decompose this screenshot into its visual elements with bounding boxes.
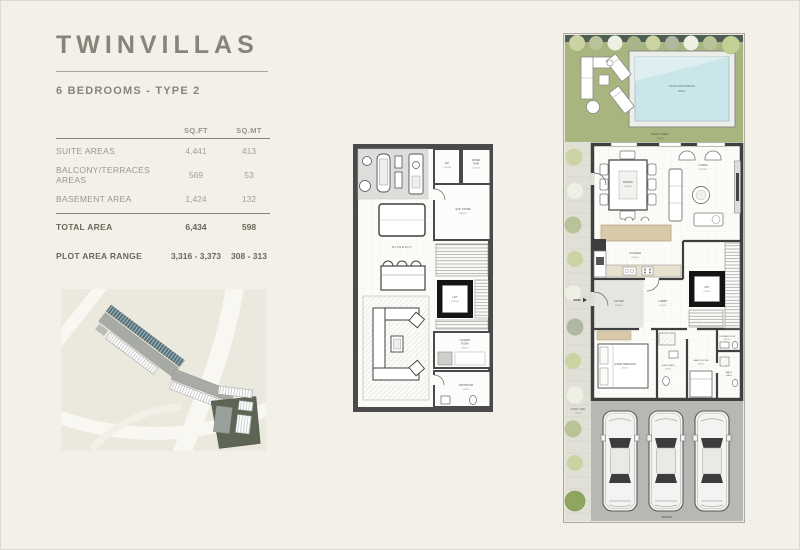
lift-dim: 2.0X1.8 bbox=[451, 301, 459, 303]
bed-icon bbox=[690, 371, 712, 397]
toilet-icon bbox=[732, 341, 738, 348]
svg-text:TANK: TANK bbox=[473, 163, 480, 166]
ground-lift: LIFT 2.0X1.8 bbox=[689, 271, 725, 307]
pillow-icon bbox=[600, 368, 608, 385]
powder-dim: 2.5X1.5 bbox=[724, 339, 731, 341]
pool: POOL PROVISION ONLY bbox=[629, 51, 735, 127]
area-table-header: SQ.FT SQ.MT bbox=[56, 123, 270, 139]
table-row: BASEMENT AREA 1,424 132 bbox=[56, 187, 270, 211]
laundry-room: LAUNDRY ROOM 1.8X1.7 bbox=[434, 332, 491, 368]
home-theatre-area bbox=[363, 296, 429, 400]
col-header-sqmt: SQ.MT bbox=[228, 126, 270, 135]
title-divider bbox=[56, 71, 268, 72]
maids-room-label: MAID'S ROOM bbox=[694, 359, 709, 362]
lift-dim: 2.0X1.8 bbox=[703, 291, 711, 293]
page-subtitle: 6 BEDROOMS - TYPE 2 bbox=[56, 85, 271, 97]
weight-rack-icon bbox=[395, 156, 402, 168]
pillow-icon bbox=[600, 347, 608, 364]
row-sqft: 4,441 bbox=[164, 146, 228, 156]
row-sqft: 569 bbox=[164, 170, 228, 180]
chair-icon bbox=[600, 194, 608, 205]
back-yard-dim: 7.4X5.7 bbox=[656, 139, 665, 141]
main-door-gap bbox=[591, 292, 595, 306]
laundry-counter bbox=[455, 352, 485, 365]
chair-icon bbox=[648, 164, 656, 175]
bar-counter-icon bbox=[381, 261, 425, 290]
bathroom-dim: 1.5X3.1 bbox=[462, 389, 470, 391]
side-table-icon bbox=[599, 75, 609, 85]
chair-icon bbox=[648, 179, 656, 190]
svg-text:ONLY: ONLY bbox=[678, 89, 686, 93]
parking-label: PARKING bbox=[662, 516, 673, 519]
chair-icon bbox=[600, 164, 608, 175]
toilet-icon bbox=[663, 377, 670, 386]
brochure-page: TWINVILLAS 6 BEDROOMS - TYPE 2 SQ.FT SQ.… bbox=[0, 0, 800, 550]
water-tank-dim: 1.4X1.8 bbox=[472, 168, 480, 170]
row-sqft: 3,316 - 3,373 bbox=[164, 251, 228, 261]
col-header-sqft: SQ.FT bbox=[164, 126, 228, 135]
dining-label: DINING bbox=[623, 180, 633, 184]
pool-label: POOL PROVISION bbox=[669, 84, 695, 88]
fridge-icon bbox=[594, 239, 606, 251]
area-table: SQ.FT SQ.MT SUITE AREAS 4,441 413 BALCON… bbox=[56, 123, 270, 272]
basement-plan-graphic: HK 1.4X1.8 WATER TANK 1.4X1.8 SUP. STORE… bbox=[353, 144, 493, 412]
basement-lift: LIFT 2.0X1.8 bbox=[437, 280, 473, 318]
sink-icon bbox=[441, 396, 450, 404]
table-row-total: TOTAL AREA 6,434 598 bbox=[56, 214, 270, 240]
row-label: TOTAL AREA bbox=[56, 222, 164, 232]
living-dim: 5.5X5.8 bbox=[699, 169, 707, 171]
lift-label: LIFT bbox=[704, 285, 710, 289]
kitchen-label: KITCHEN bbox=[629, 251, 641, 255]
row-sqmt: 132 bbox=[228, 194, 270, 204]
row-sqmt: 53 bbox=[228, 170, 270, 180]
gym-ball-icon bbox=[360, 181, 371, 192]
toilet-icon bbox=[470, 396, 477, 405]
row-sqft: 6,434 bbox=[164, 222, 228, 232]
hk-label: HK bbox=[445, 161, 449, 165]
row-sqmt: 308 - 313 bbox=[228, 251, 270, 261]
svg-text:ROOM: ROOM bbox=[461, 344, 468, 346]
gym-area bbox=[358, 149, 428, 199]
bathroom-label: BATHROOM bbox=[459, 384, 473, 387]
guest-bedroom-label: GUEST BEDROOM bbox=[614, 363, 635, 366]
car-icon bbox=[647, 411, 685, 511]
guest-bath-label: GUEST BATH bbox=[661, 364, 675, 367]
location-map-graphic bbox=[61, 289, 266, 451]
foyer-dim: 2.5X2.4 bbox=[615, 305, 623, 307]
car-icon bbox=[601, 411, 639, 511]
washer-icon bbox=[438, 352, 452, 365]
dining-area: DINING 3.6X4.2 bbox=[600, 151, 656, 219]
weight-rack-icon bbox=[395, 172, 402, 188]
lobby-dim: 2.5X2.5 bbox=[659, 305, 667, 307]
shower-icon bbox=[720, 357, 729, 366]
wardrobe-icon bbox=[597, 331, 631, 340]
row-label: SUITE AREAS bbox=[56, 146, 164, 156]
maids-room-dim: 3.0X2.4 bbox=[698, 364, 705, 366]
laundry-label: LAUNDRY bbox=[460, 339, 471, 342]
gym-ball-icon bbox=[363, 157, 372, 166]
table-row: BALCONY/TERRACES AREAS 569 53 bbox=[56, 163, 270, 187]
sofa-icon bbox=[669, 169, 682, 221]
basement-label: BASEMENT bbox=[392, 245, 413, 249]
sup-store-dim: 3.4X3.7 bbox=[459, 213, 467, 215]
hk-dim: 1.4X1.8 bbox=[443, 167, 451, 169]
sup-store-room: SUP. STORE 3.4X3.7 bbox=[433, 184, 491, 240]
svg-text:BATH: BATH bbox=[727, 374, 733, 377]
basement-floor-plan: HK 1.4X1.8 WATER TANK 1.4X1.8 SUP. STORE… bbox=[353, 144, 493, 417]
powder-label: POWDER ROOM bbox=[719, 336, 735, 338]
main-entry-label: MAIN bbox=[573, 298, 580, 302]
chair-icon bbox=[600, 179, 608, 190]
kitchen-island bbox=[601, 225, 671, 241]
hob-icon bbox=[642, 267, 653, 275]
water-tank-room: WATER TANK 1.4X1.8 bbox=[462, 149, 491, 184]
laundry-dim: 1.8X1.7 bbox=[461, 348, 469, 350]
info-panel: TWINVILLAS 6 BEDROOMS - TYPE 2 SQ.FT SQ.… bbox=[56, 31, 271, 272]
round-chair-icon bbox=[587, 101, 600, 114]
sink-icon bbox=[720, 342, 729, 348]
table-row-plot-range: PLOT AREA RANGE 3,316 - 3,373 308 - 313 bbox=[56, 240, 270, 272]
lift-label: LIFT bbox=[452, 295, 458, 299]
sink-icon bbox=[669, 351, 678, 358]
shower-icon bbox=[659, 333, 675, 345]
guest-bath-dim: 1.6X3.1 bbox=[665, 369, 672, 371]
dining-dim: 3.6X4.2 bbox=[624, 186, 632, 188]
chair-icon bbox=[648, 194, 656, 205]
hk-room: HK 1.4X1.8 bbox=[434, 149, 460, 184]
lobby-label: LOBBY bbox=[658, 299, 667, 303]
foyer-floor bbox=[595, 281, 644, 328]
window-icons bbox=[611, 143, 725, 146]
row-sqft: 1,424 bbox=[164, 194, 228, 204]
location-map bbox=[61, 289, 266, 456]
maids-bath-label: MAID'S bbox=[726, 371, 733, 374]
table-row: SUITE AREAS 4,441 413 bbox=[56, 139, 270, 163]
ground-floor-plan: POOL PROVISION ONLY bbox=[563, 33, 745, 528]
foyer-label: FOYER bbox=[614, 299, 624, 303]
kitchen-dim: 3.4X4.1 bbox=[631, 257, 639, 259]
row-sqmt: 598 bbox=[228, 222, 270, 232]
sup-store-label: SUP. STORE bbox=[455, 207, 471, 211]
front-yard-dim: 7.4X6.0 bbox=[575, 413, 583, 415]
row-label: BALCONY/TERRACES AREAS bbox=[56, 165, 164, 185]
car-icon bbox=[693, 411, 731, 511]
toilet-icon bbox=[732, 379, 738, 386]
living-label: LIVING bbox=[698, 163, 707, 167]
row-label: PLOT AREA RANGE bbox=[56, 251, 164, 261]
back-yard-label: BACK YARD bbox=[651, 132, 669, 136]
guest-bedroom-dim: 3.1X4.7 bbox=[622, 368, 630, 370]
page-title: TWINVILLAS bbox=[56, 31, 271, 60]
basement-bathroom: BATHROOM 1.5X3.1 bbox=[433, 371, 491, 407]
chair-icon bbox=[620, 151, 635, 159]
row-label: BASEMENT AREA bbox=[56, 194, 164, 204]
ground-plan-graphic: POOL PROVISION ONLY bbox=[563, 33, 745, 523]
front-yard-label: FRONT YARD bbox=[571, 408, 586, 411]
row-sqmt: 413 bbox=[228, 146, 270, 156]
